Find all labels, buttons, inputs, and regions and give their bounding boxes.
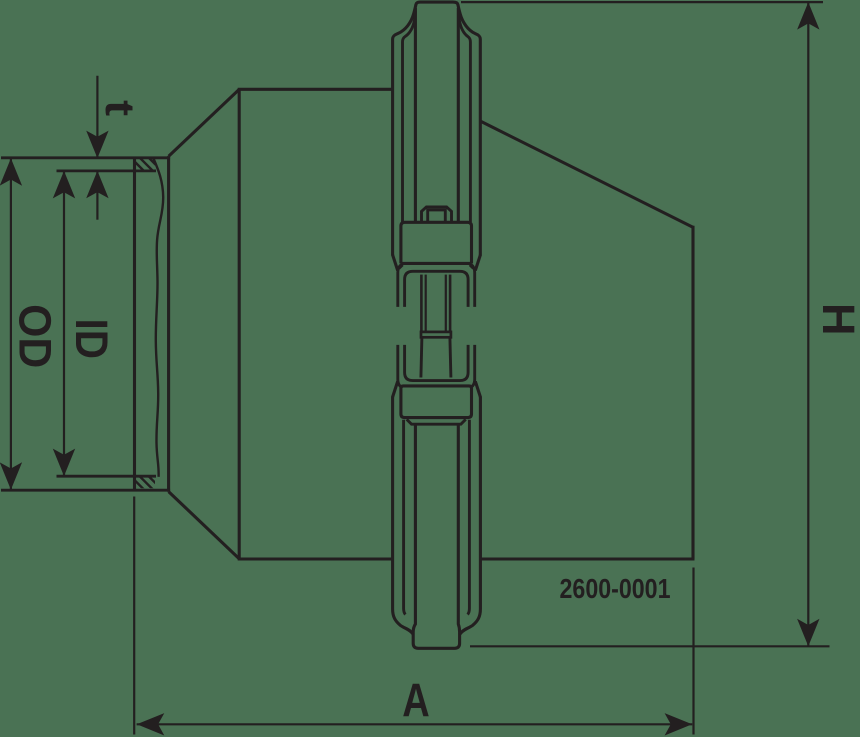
svg-text:H: H	[813, 303, 860, 336]
svg-text:t: t	[97, 100, 144, 116]
svg-text:A: A	[402, 674, 430, 727]
svg-text:2600-0001: 2600-0001	[560, 573, 671, 604]
svg-text:OD: OD	[9, 304, 59, 368]
svg-text:ID: ID	[66, 319, 116, 360]
